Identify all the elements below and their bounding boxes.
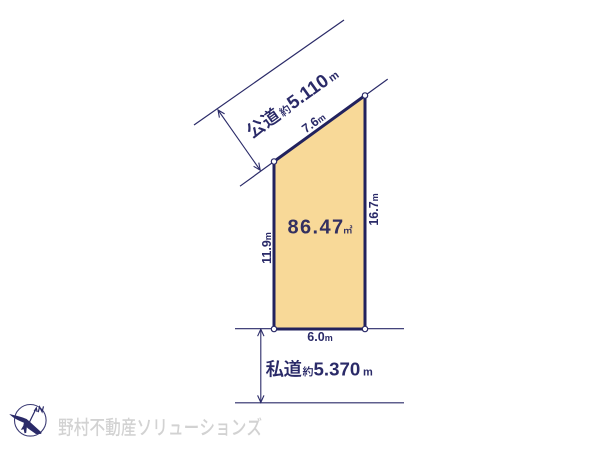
svg-text:m: m [363,367,373,379]
svg-text:5.370: 5.370 [314,359,361,380]
svg-text:6.0m: 6.0m [307,330,332,344]
svg-text:11.9m: 11.9m [260,232,274,264]
svg-text:16.7m: 16.7m [367,193,381,225]
svg-text:86.47: 86.47 [288,217,345,239]
